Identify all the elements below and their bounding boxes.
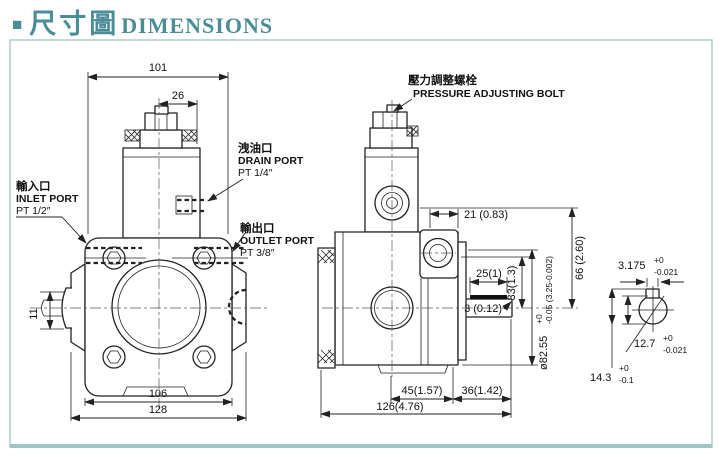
inlet-zh: 輸入口	[16, 179, 51, 193]
dim-45-label: 45(1.57)	[402, 385, 443, 397]
dim-11-label: 11	[28, 308, 40, 319]
front-right-boss	[232, 264, 246, 351]
dim-key-width-label: 3.175	[618, 260, 646, 272]
drain-zh: 洩油口	[238, 141, 273, 155]
dim-26-label: 26	[172, 90, 184, 102]
dim-128-label: 128	[149, 404, 167, 416]
key-tol-bottom: -0.021	[654, 267, 678, 277]
inlet-en: INLET PORT	[16, 193, 79, 205]
dia-tol-bottom: -0.021	[663, 345, 687, 355]
dim-dia-tol-bottom: -0.05 (3.25-0.002)	[544, 256, 554, 324]
dim-66-label: 66 (2.60)	[574, 236, 586, 280]
dim-dia-label: ø82.55	[538, 336, 550, 370]
overall-tol-top: +0	[619, 363, 629, 373]
dim-overall-label: 14.3	[590, 372, 611, 384]
dia-tol-top: +0	[663, 333, 673, 343]
dim-126-label: 126(4.76)	[376, 401, 423, 413]
technical-drawing: 101 26 106 128 11 輸入口 INLET	[0, 0, 720, 457]
dim-21-label: 21 (0.83)	[464, 209, 508, 221]
dim-36-label: 36(1.42)	[462, 385, 503, 397]
dimension-drawing-page: ■ 尺寸圖 DIMENSIONS	[0, 0, 720, 457]
outlet-en: OUTLET PORT	[240, 235, 315, 247]
dim-25-label: 25(1)	[476, 268, 502, 280]
overall-tol-bottom: -0.1	[619, 375, 634, 385]
dim-33-label: 33(1.3)	[506, 266, 518, 301]
outlet-size: PT 3/8″	[240, 247, 275, 259]
pressure-zh: 壓力調整螺栓	[408, 73, 477, 87]
dim-106-label: 106	[149, 388, 167, 400]
inlet-size: PT 1/2″	[16, 205, 51, 217]
dim-101-label: 101	[149, 62, 167, 74]
outlet-zh: 輸出口	[240, 221, 275, 235]
pressure-en: PRESSURE ADJUSTING BOLT	[413, 88, 565, 100]
drain-size: PT 1/4″	[238, 167, 273, 179]
dim-dia-tol-top: +0	[534, 314, 544, 324]
drain-en: DRAIN PORT	[238, 155, 304, 167]
key-tol-top: +0	[654, 255, 664, 265]
dim-3-label: 3 (0.12)	[464, 303, 502, 315]
dim-shaft-dia-label: 12.7	[634, 338, 655, 350]
